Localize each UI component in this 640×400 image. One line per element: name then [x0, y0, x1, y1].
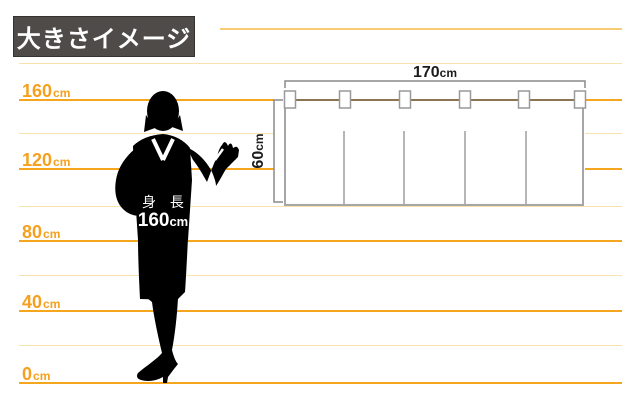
person-skirt: [138, 238, 188, 300]
person-legs: [137, 298, 178, 383]
person-height-caption: 身 長 160cm: [118, 193, 208, 232]
size-guide-diagram: 160cm 120cm 80cm 40cm 0cm 170cm 60cm: [0, 0, 640, 400]
noren-body: [285, 100, 583, 205]
height-dimension-label: 60cm: [250, 133, 267, 168]
height-caption-value: 160cm: [118, 211, 208, 232]
ruler-label-120: 120cm: [22, 151, 70, 169]
ruler-line-200: [220, 28, 622, 30]
ruler-label-160: 160cm: [22, 82, 70, 100]
person-silhouette: [110, 90, 245, 386]
ruler-label-40: 40cm: [22, 293, 60, 311]
width-dimension-label: 170cm: [413, 64, 457, 81]
noren-diagram: 170cm 60cm: [250, 58, 595, 215]
page-title: 大きさイメージ: [13, 16, 195, 57]
person-raised-arm: [188, 142, 239, 186]
height-caption-title: 身 長: [118, 193, 208, 211]
page-title-text: 大きさイメージ: [17, 19, 192, 54]
ruler-label-80: 80cm: [22, 223, 60, 241]
ruler-label-0: 0cm: [22, 365, 50, 383]
